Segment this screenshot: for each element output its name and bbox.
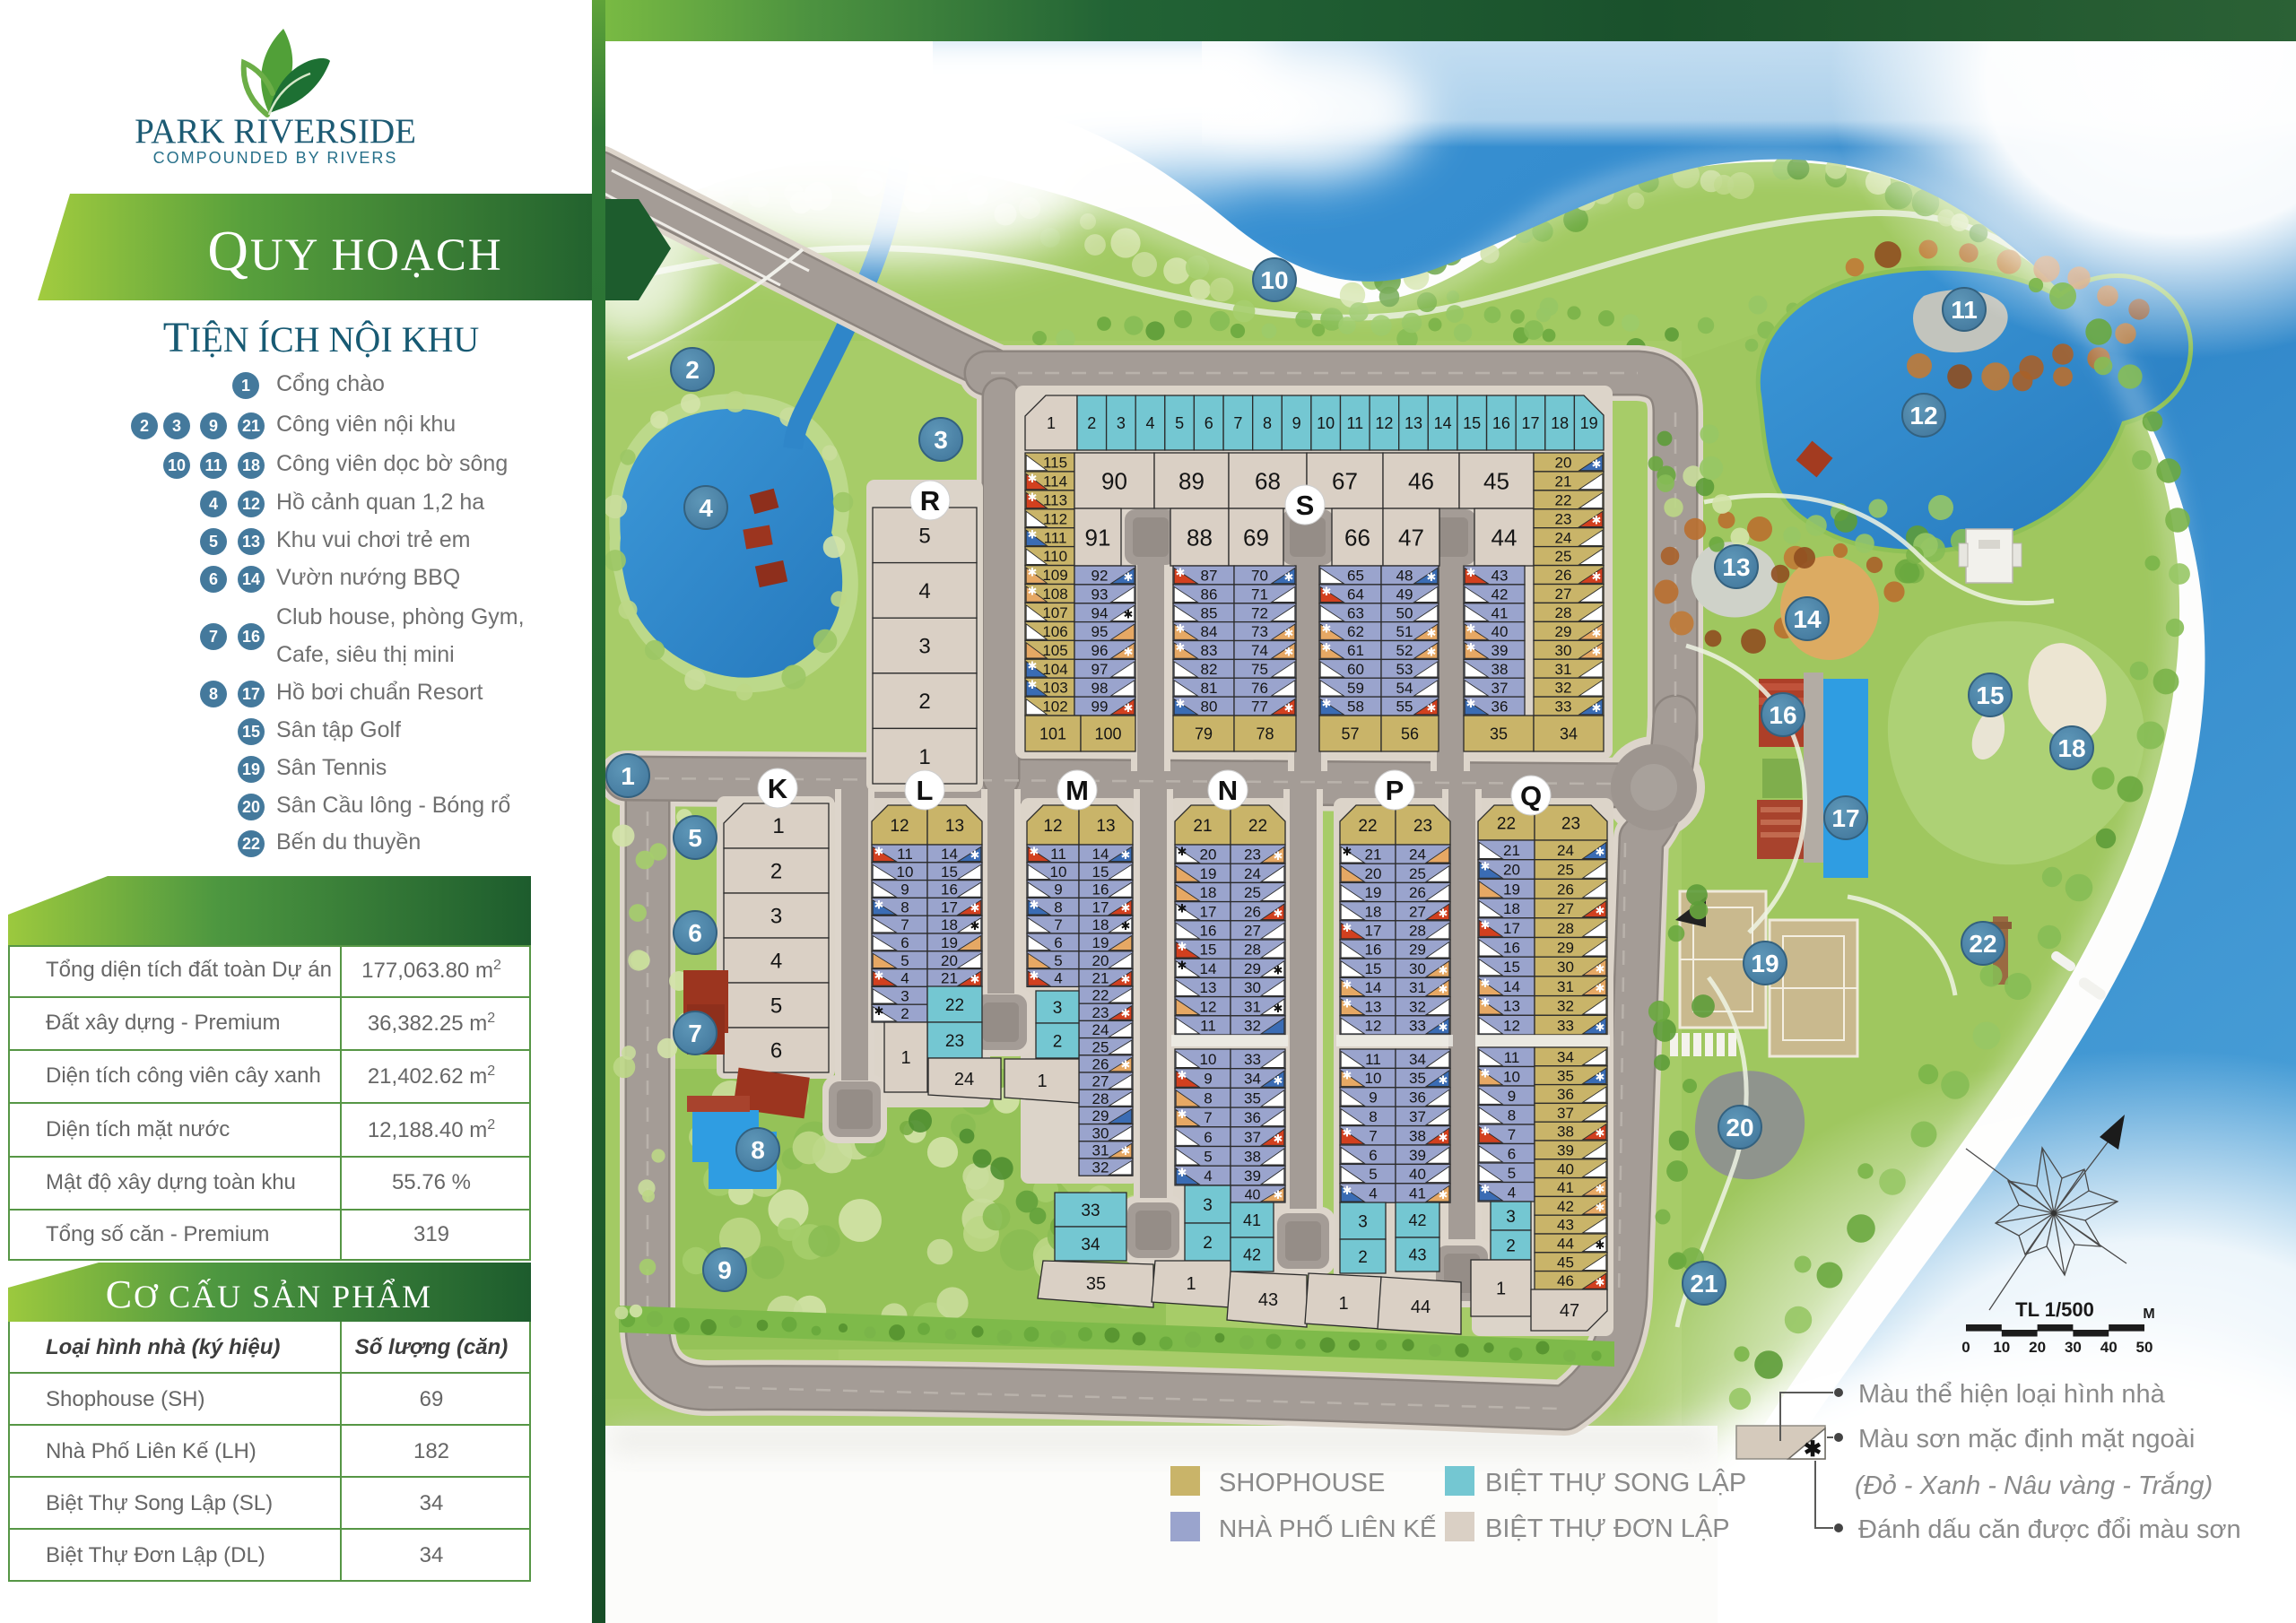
svg-text:28: 28: [1244, 942, 1261, 959]
svg-text:6: 6: [1205, 414, 1213, 432]
svg-text:8: 8: [900, 898, 909, 916]
svg-text:2: 2: [770, 860, 782, 884]
svg-text:107: 107: [1042, 604, 1067, 621]
svg-text:✱: ✱: [1592, 570, 1602, 584]
svg-text:8: 8: [1263, 414, 1272, 432]
svg-text:✱: ✱: [1596, 982, 1605, 995]
svg-text:21: 21: [1365, 846, 1382, 864]
svg-text:✱: ✱: [1284, 645, 1294, 658]
svg-text:112: 112: [1043, 510, 1067, 527]
svg-text:✱: ✱: [1322, 622, 1332, 636]
svg-text:6: 6: [688, 919, 702, 947]
svg-text:26: 26: [1092, 1056, 1109, 1073]
svg-text:✱: ✱: [1028, 528, 1038, 542]
svg-text:✱: ✱: [1596, 1071, 1605, 1084]
svg-text:3: 3: [1117, 414, 1126, 432]
svg-text:✱: ✱: [1466, 622, 1476, 636]
svg-text:58: 58: [1347, 699, 1364, 716]
svg-text:20: 20: [1365, 865, 1382, 882]
svg-text:✱: ✱: [1121, 972, 1131, 985]
svg-text:✱: ✱: [874, 845, 884, 858]
svg-text:47: 47: [1398, 524, 1424, 551]
svg-text:✱: ✱: [1124, 645, 1134, 658]
svg-text:17: 17: [1365, 923, 1382, 940]
svg-text:20: 20: [1726, 1114, 1753, 1141]
svg-text:13: 13: [1200, 979, 1217, 996]
svg-text:8: 8: [1508, 1107, 1516, 1124]
svg-text:8: 8: [1054, 898, 1062, 916]
svg-text:23: 23: [1413, 817, 1432, 836]
svg-text:14: 14: [1503, 978, 1520, 995]
svg-text:✱: ✱: [1427, 627, 1437, 640]
svg-text:✱: ✱: [1596, 962, 1605, 976]
svg-text:✱: ✱: [1481, 918, 1491, 932]
svg-text:✱: ✱: [970, 901, 980, 915]
svg-text:33: 33: [1244, 1051, 1261, 1068]
svg-text:13: 13: [1096, 817, 1115, 836]
svg-text:9: 9: [1054, 881, 1062, 898]
svg-text:43: 43: [1408, 1246, 1426, 1264]
svg-text:10: 10: [1365, 1070, 1382, 1087]
svg-text:✱: ✱: [1481, 1067, 1491, 1081]
svg-text:✱: ✱: [1596, 1126, 1605, 1140]
svg-text:TL 1/500: TL 1/500: [2015, 1298, 2094, 1321]
svg-text:✱: ✱: [874, 1004, 884, 1018]
svg-text:80: 80: [1201, 699, 1218, 716]
svg-text:✱: ✱: [1466, 697, 1476, 710]
svg-text:40: 40: [2100, 1339, 2118, 1356]
svg-text:102: 102: [1042, 699, 1067, 716]
svg-text:19: 19: [1580, 414, 1598, 432]
svg-text:20: 20: [941, 952, 958, 969]
svg-text:14: 14: [941, 846, 958, 863]
svg-text:✱: ✱: [1178, 959, 1187, 972]
svg-text:34: 34: [1081, 1236, 1100, 1254]
svg-text:41: 41: [1243, 1211, 1261, 1229]
svg-text:24: 24: [1409, 846, 1426, 864]
svg-text:✱: ✱: [1592, 514, 1602, 527]
svg-text:82: 82: [1201, 661, 1218, 678]
svg-text:20: 20: [2029, 1339, 2046, 1356]
svg-text:85: 85: [1201, 604, 1218, 621]
svg-text:✱: ✱: [1343, 1184, 1352, 1197]
svg-text:✱: ✱: [1322, 641, 1332, 655]
svg-text:31: 31: [1409, 979, 1426, 996]
svg-text:86: 86: [1201, 586, 1218, 603]
svg-text:104: 104: [1042, 661, 1067, 678]
svg-text:10: 10: [1050, 864, 1067, 881]
svg-text:24: 24: [1092, 1021, 1109, 1038]
svg-text:✱: ✱: [1274, 907, 1283, 920]
svg-text:25: 25: [1409, 865, 1426, 882]
svg-text:5: 5: [918, 524, 930, 548]
svg-text:28: 28: [1092, 1090, 1109, 1107]
svg-text:16: 16: [1092, 881, 1109, 898]
svg-text:32: 32: [1244, 1018, 1261, 1035]
svg-text:40: 40: [1557, 1160, 1574, 1177]
svg-text:15: 15: [1463, 414, 1481, 432]
svg-text:6: 6: [900, 934, 909, 951]
svg-text:30: 30: [1244, 979, 1261, 996]
svg-text:3: 3: [1053, 999, 1063, 1018]
svg-text:✱: ✱: [1439, 1131, 1448, 1144]
svg-text:28: 28: [1409, 923, 1426, 940]
svg-text:✱: ✱: [1596, 1020, 1605, 1034]
svg-text:105: 105: [1042, 642, 1067, 659]
svg-text:99: 99: [1091, 699, 1109, 716]
svg-text:34: 34: [1560, 725, 1578, 743]
svg-text:7: 7: [1204, 1109, 1212, 1126]
svg-text:32: 32: [1409, 998, 1426, 1015]
svg-text:93: 93: [1091, 586, 1109, 603]
svg-text:62: 62: [1347, 623, 1364, 640]
svg-text:✱: ✱: [1176, 697, 1186, 710]
svg-text:✱: ✱: [1427, 570, 1437, 584]
svg-text:✱: ✱: [1596, 1238, 1605, 1252]
svg-text:21: 21: [1690, 1270, 1718, 1298]
svg-text:11: 11: [897, 846, 913, 863]
svg-text:92: 92: [1091, 568, 1109, 585]
svg-text:✱: ✱: [1427, 645, 1437, 658]
svg-text:26: 26: [1244, 903, 1261, 920]
svg-text:19: 19: [941, 934, 958, 951]
svg-text:11: 11: [1365, 1051, 1381, 1068]
svg-text:111: 111: [1044, 529, 1067, 546]
svg-text:7: 7: [1054, 916, 1062, 933]
svg-text:6: 6: [770, 1039, 782, 1063]
svg-text:11: 11: [1504, 1049, 1520, 1066]
svg-text:10: 10: [897, 864, 914, 881]
svg-text:25: 25: [1092, 1038, 1109, 1055]
svg-text:4: 4: [1145, 414, 1154, 432]
svg-text:44: 44: [1492, 524, 1518, 551]
svg-text:46: 46: [1408, 467, 1434, 494]
svg-text:12: 12: [1200, 998, 1217, 1015]
svg-text:27: 27: [1092, 1073, 1109, 1090]
svg-text:23: 23: [1244, 846, 1261, 864]
svg-text:27: 27: [1555, 586, 1572, 603]
svg-text:42: 42: [1408, 1211, 1426, 1229]
svg-text:4: 4: [1204, 1167, 1212, 1185]
svg-text:23: 23: [1561, 815, 1580, 834]
svg-text:41: 41: [1492, 604, 1509, 621]
svg-text:✱: ✱: [1028, 678, 1038, 691]
svg-text:✱: ✱: [1322, 697, 1332, 710]
svg-text:40: 40: [1245, 1187, 1261, 1202]
svg-text:16: 16: [1769, 701, 1796, 729]
svg-text:P: P: [1386, 775, 1405, 806]
svg-text:✱: ✱: [1481, 976, 1491, 990]
svg-text:17: 17: [941, 898, 958, 916]
svg-text:29: 29: [1555, 623, 1572, 640]
svg-text:M: M: [2143, 1306, 2154, 1322]
svg-text:✱: ✱: [874, 898, 884, 911]
svg-text:✱: ✱: [1284, 570, 1294, 584]
svg-text:88: 88: [1187, 524, 1213, 551]
svg-text:7: 7: [1508, 1126, 1516, 1143]
svg-text:69: 69: [1243, 524, 1269, 551]
svg-text:18: 18: [1092, 916, 1109, 933]
svg-text:61: 61: [1347, 642, 1364, 659]
svg-text:R: R: [920, 485, 940, 516]
svg-text:66: 66: [1344, 524, 1370, 551]
svg-text:12: 12: [890, 817, 909, 836]
svg-text:✱: ✱: [1121, 1144, 1131, 1158]
svg-text:1: 1: [900, 1048, 910, 1068]
svg-text:54: 54: [1396, 680, 1413, 697]
svg-text:✱: ✱: [970, 972, 980, 985]
svg-text:31: 31: [1557, 978, 1574, 995]
svg-text:39: 39: [1492, 642, 1509, 659]
svg-text:✱: ✱: [1274, 849, 1283, 863]
svg-text:97: 97: [1091, 661, 1109, 678]
svg-text:38: 38: [1409, 1127, 1426, 1144]
svg-text:✱: ✱: [1121, 901, 1131, 915]
svg-text:M: M: [1065, 775, 1089, 806]
svg-text:29: 29: [1092, 1107, 1109, 1124]
svg-text:✱: ✱: [1176, 566, 1186, 579]
svg-text:89: 89: [1178, 467, 1205, 494]
svg-text:36: 36: [1409, 1089, 1426, 1107]
svg-text:✱: ✱: [1596, 1201, 1605, 1214]
svg-text:35: 35: [1244, 1089, 1261, 1107]
svg-text:39: 39: [1557, 1142, 1574, 1159]
svg-text:✱: ✱: [1028, 472, 1038, 485]
svg-text:2: 2: [900, 1005, 909, 1022]
svg-text:11: 11: [1050, 846, 1066, 863]
svg-text:53: 53: [1396, 661, 1413, 678]
svg-text:✱: ✱: [1343, 997, 1352, 1011]
svg-text:35: 35: [1409, 1070, 1426, 1087]
svg-text:✱: ✱: [1596, 904, 1605, 917]
svg-text:103: 103: [1042, 680, 1067, 697]
svg-text:33: 33: [1557, 1017, 1574, 1034]
svg-text:43: 43: [1258, 1290, 1278, 1310]
svg-text:2: 2: [1506, 1237, 1516, 1255]
svg-text:N: N: [1218, 775, 1238, 806]
svg-text:35: 35: [1086, 1274, 1106, 1294]
svg-text:✱: ✱: [1124, 608, 1134, 621]
svg-text:34: 34: [1244, 1071, 1261, 1088]
svg-text:25: 25: [1244, 884, 1261, 901]
svg-text:16: 16: [1503, 940, 1520, 957]
svg-text:106: 106: [1042, 623, 1067, 640]
svg-text:✱: ✱: [1343, 977, 1352, 991]
svg-text:✱: ✱: [1030, 845, 1039, 858]
svg-text:✱: ✱: [1466, 641, 1476, 655]
svg-text:✱: ✱: [1121, 1006, 1131, 1020]
svg-text:55: 55: [1396, 699, 1413, 716]
svg-text:96: 96: [1091, 642, 1109, 659]
svg-text:9: 9: [1508, 1088, 1516, 1105]
svg-text:4: 4: [1054, 970, 1062, 987]
svg-text:60: 60: [1347, 661, 1364, 678]
svg-text:9: 9: [1292, 414, 1301, 432]
svg-text:5: 5: [1204, 1149, 1212, 1166]
svg-text:11: 11: [1346, 414, 1363, 432]
svg-text:100: 100: [1094, 725, 1121, 743]
svg-text:29: 29: [1244, 960, 1261, 977]
svg-text:1: 1: [1496, 1280, 1506, 1299]
svg-text:72: 72: [1251, 604, 1268, 621]
svg-text:3: 3: [918, 635, 930, 659]
svg-text:7: 7: [900, 916, 909, 933]
svg-text:9: 9: [1369, 1089, 1377, 1107]
svg-text:25: 25: [1557, 862, 1574, 879]
svg-text:4: 4: [1508, 1184, 1516, 1201]
svg-text:20: 20: [1200, 846, 1217, 864]
svg-text:28: 28: [1557, 920, 1574, 937]
svg-text:12: 12: [1375, 414, 1393, 432]
svg-text:15: 15: [1092, 864, 1109, 881]
svg-text:6: 6: [1369, 1147, 1377, 1164]
svg-text:✱: ✱: [1439, 907, 1448, 920]
svg-text:14: 14: [1434, 414, 1452, 432]
svg-text:✱: ✱: [1804, 1437, 1822, 1462]
svg-text:31: 31: [1092, 1142, 1109, 1159]
svg-text:1: 1: [1186, 1274, 1196, 1294]
svg-text:Màu sơn mặc định mặt ngoài: Màu sơn mặc định mặt ngoài: [1858, 1425, 2195, 1454]
svg-text:8: 8: [1369, 1108, 1377, 1125]
svg-text:37: 37: [1244, 1129, 1261, 1146]
svg-text:✱: ✱: [1439, 1020, 1448, 1034]
svg-text:3: 3: [1203, 1196, 1213, 1215]
svg-text:44: 44: [1557, 1236, 1574, 1253]
svg-text:56: 56: [1401, 725, 1419, 743]
svg-text:24: 24: [1555, 529, 1572, 546]
svg-text:13: 13: [1722, 553, 1750, 581]
svg-text:22: 22: [1969, 930, 1996, 958]
svg-text:25: 25: [1555, 548, 1572, 565]
svg-text:30: 30: [1092, 1124, 1109, 1141]
svg-text:12: 12: [1909, 402, 1937, 430]
svg-text:115: 115: [1043, 455, 1067, 472]
svg-text:11: 11: [1200, 1018, 1216, 1035]
svg-text:114: 114: [1043, 473, 1067, 490]
svg-text:49: 49: [1396, 586, 1413, 603]
svg-text:44: 44: [1411, 1298, 1431, 1317]
svg-text:19: 19: [1365, 884, 1382, 901]
svg-text:✱: ✱: [1121, 1058, 1131, 1072]
svg-text:48: 48: [1396, 568, 1413, 585]
svg-text:50: 50: [2136, 1339, 2153, 1356]
svg-text:2: 2: [1053, 1032, 1063, 1051]
svg-text:19: 19: [1503, 881, 1520, 898]
svg-text:✱: ✱: [1030, 898, 1039, 911]
svg-text:50: 50: [1396, 604, 1413, 621]
svg-text:S: S: [1296, 490, 1315, 521]
svg-text:L: L: [917, 775, 934, 806]
svg-text:1: 1: [1037, 1072, 1047, 1091]
svg-text:✱: ✱: [1284, 627, 1294, 640]
svg-text:19: 19: [1751, 950, 1779, 977]
svg-text:18: 18: [1365, 903, 1382, 920]
svg-text:41: 41: [1409, 1185, 1426, 1202]
svg-text:✱: ✱: [1343, 845, 1352, 858]
svg-text:✱: ✱: [1481, 1183, 1491, 1196]
svg-text:5: 5: [770, 994, 782, 1019]
svg-text:3: 3: [770, 905, 782, 929]
svg-text:21: 21: [941, 970, 958, 987]
svg-text:NHÀ PHỐ LIÊN KẾ: NHÀ PHỐ LIÊN KẾ: [1219, 1514, 1437, 1542]
svg-text:2: 2: [1203, 1234, 1213, 1253]
svg-text:✱: ✱: [1439, 1188, 1448, 1202]
svg-text:108: 108: [1042, 586, 1067, 603]
svg-text:5: 5: [1175, 414, 1184, 432]
svg-text:109: 109: [1042, 567, 1067, 584]
svg-text:78: 78: [1256, 725, 1274, 743]
svg-text:2: 2: [918, 690, 930, 714]
svg-text:38: 38: [1492, 661, 1509, 678]
svg-text:✱: ✱: [1121, 919, 1131, 933]
svg-text:0: 0: [1961, 1339, 1970, 1356]
svg-text:2: 2: [685, 356, 700, 384]
svg-text:✱: ✱: [874, 969, 884, 983]
svg-text:✱: ✱: [1439, 983, 1448, 996]
svg-text:✱: ✱: [1284, 701, 1294, 715]
svg-text:K: K: [768, 773, 788, 804]
svg-text:40: 40: [1409, 1166, 1426, 1183]
svg-text:70: 70: [1251, 568, 1268, 585]
svg-text:1: 1: [918, 745, 930, 769]
svg-text:13: 13: [1365, 998, 1382, 1015]
svg-text:81: 81: [1201, 680, 1218, 697]
svg-text:7: 7: [1369, 1127, 1377, 1144]
svg-text:6: 6: [1204, 1129, 1212, 1146]
svg-text:38: 38: [1244, 1149, 1261, 1166]
svg-text:68: 68: [1255, 467, 1281, 494]
svg-text:46: 46: [1557, 1272, 1574, 1289]
svg-text:✱: ✱: [1343, 1068, 1352, 1081]
svg-text:Màu thể hiện loại hình nhà: Màu thể hiện loại hình nhà: [1858, 1380, 2166, 1409]
svg-text:30: 30: [1555, 642, 1572, 659]
svg-text:✱: ✱: [1124, 701, 1134, 715]
svg-text:22: 22: [1092, 987, 1109, 1004]
svg-text:75: 75: [1251, 661, 1268, 678]
svg-text:22: 22: [1497, 815, 1516, 834]
svg-text:17: 17: [1092, 898, 1109, 916]
svg-text:BIỆT THỰ SONG LẬP: BIỆT THỰ SONG LẬP: [1485, 1468, 1746, 1497]
svg-text:12: 12: [1503, 1017, 1520, 1034]
svg-text:✱: ✱: [1028, 659, 1038, 673]
svg-text:✱: ✱: [1178, 845, 1187, 858]
svg-text:8: 8: [751, 1136, 765, 1164]
svg-text:15: 15: [1503, 959, 1520, 976]
svg-text:1: 1: [621, 762, 635, 790]
svg-text:36: 36: [1244, 1109, 1261, 1126]
svg-text:Đánh dấu căn được đổi màu sơn: Đánh dấu căn được đổi màu sơn: [1858, 1515, 2241, 1544]
svg-text:13: 13: [945, 817, 964, 836]
svg-text:14: 14: [1092, 846, 1109, 863]
svg-text:17: 17: [1831, 804, 1859, 832]
svg-text:1: 1: [1047, 414, 1056, 432]
svg-text:9: 9: [1204, 1071, 1212, 1088]
svg-text:27: 27: [1557, 900, 1574, 917]
svg-text:83: 83: [1201, 642, 1218, 659]
svg-text:11: 11: [1951, 296, 1978, 324]
svg-text:✱: ✱: [1481, 996, 1491, 1010]
svg-text:31: 31: [1555, 661, 1572, 678]
svg-text:✱: ✱: [1274, 1188, 1283, 1202]
svg-text:5: 5: [900, 952, 909, 969]
svg-text:15: 15: [941, 864, 958, 881]
svg-text:32: 32: [1555, 680, 1572, 697]
svg-text:Q: Q: [1520, 780, 1542, 811]
svg-text:67: 67: [1332, 467, 1358, 494]
svg-text:15: 15: [1200, 942, 1217, 959]
svg-text:✱: ✱: [1178, 1107, 1187, 1121]
svg-text:4: 4: [918, 579, 930, 603]
